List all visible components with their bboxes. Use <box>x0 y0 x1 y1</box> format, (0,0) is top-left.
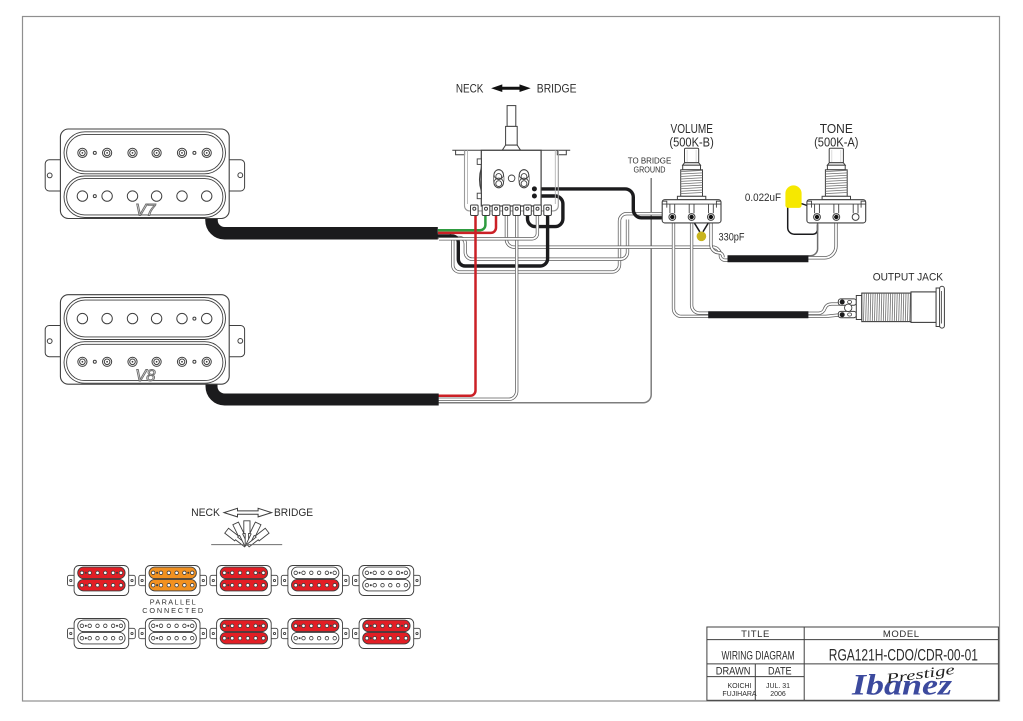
svg-text:GROUND: GROUND <box>634 164 666 174</box>
svg-text:CONNECTED: CONNECTED <box>142 606 203 615</box>
svg-text:0.022uF: 0.022uF <box>745 192 782 204</box>
svg-text:VOLUME: VOLUME <box>671 122 714 136</box>
svg-text:TITLE: TITLE <box>741 629 770 640</box>
svg-text:(500K-A): (500K-A) <box>814 135 858 149</box>
svg-text:DATE: DATE <box>768 666 792 678</box>
svg-text:TONE: TONE <box>820 122 853 136</box>
svg-text:BRIDGE: BRIDGE <box>537 84 577 96</box>
svg-text:330pF: 330pF <box>719 231 745 243</box>
svg-text:NECK: NECK <box>191 507 220 519</box>
svg-text:V7: V7 <box>135 202 156 220</box>
svg-text:NECK: NECK <box>456 84 484 96</box>
svg-text:FUJIHARA: FUJIHARA <box>722 691 757 698</box>
svg-text:WIRING DIAGRAM: WIRING DIAGRAM <box>722 648 795 662</box>
svg-text:KOICHI: KOICHI <box>727 683 751 690</box>
svg-text:BRIDGE: BRIDGE <box>274 507 313 519</box>
svg-text:JUL. 31: JUL. 31 <box>766 683 790 690</box>
svg-text:MODEL: MODEL <box>883 629 920 640</box>
svg-text:DRAWN: DRAWN <box>716 666 751 678</box>
svg-text:V8: V8 <box>135 367 156 385</box>
svg-text:(500K-B): (500K-B) <box>669 135 713 149</box>
svg-text:OUTPUT JACK: OUTPUT JACK <box>873 272 944 284</box>
svg-text:2006: 2006 <box>770 691 786 698</box>
svg-text:RGA121H-CDO/CDR-00-01: RGA121H-CDO/CDR-00-01 <box>829 646 978 665</box>
